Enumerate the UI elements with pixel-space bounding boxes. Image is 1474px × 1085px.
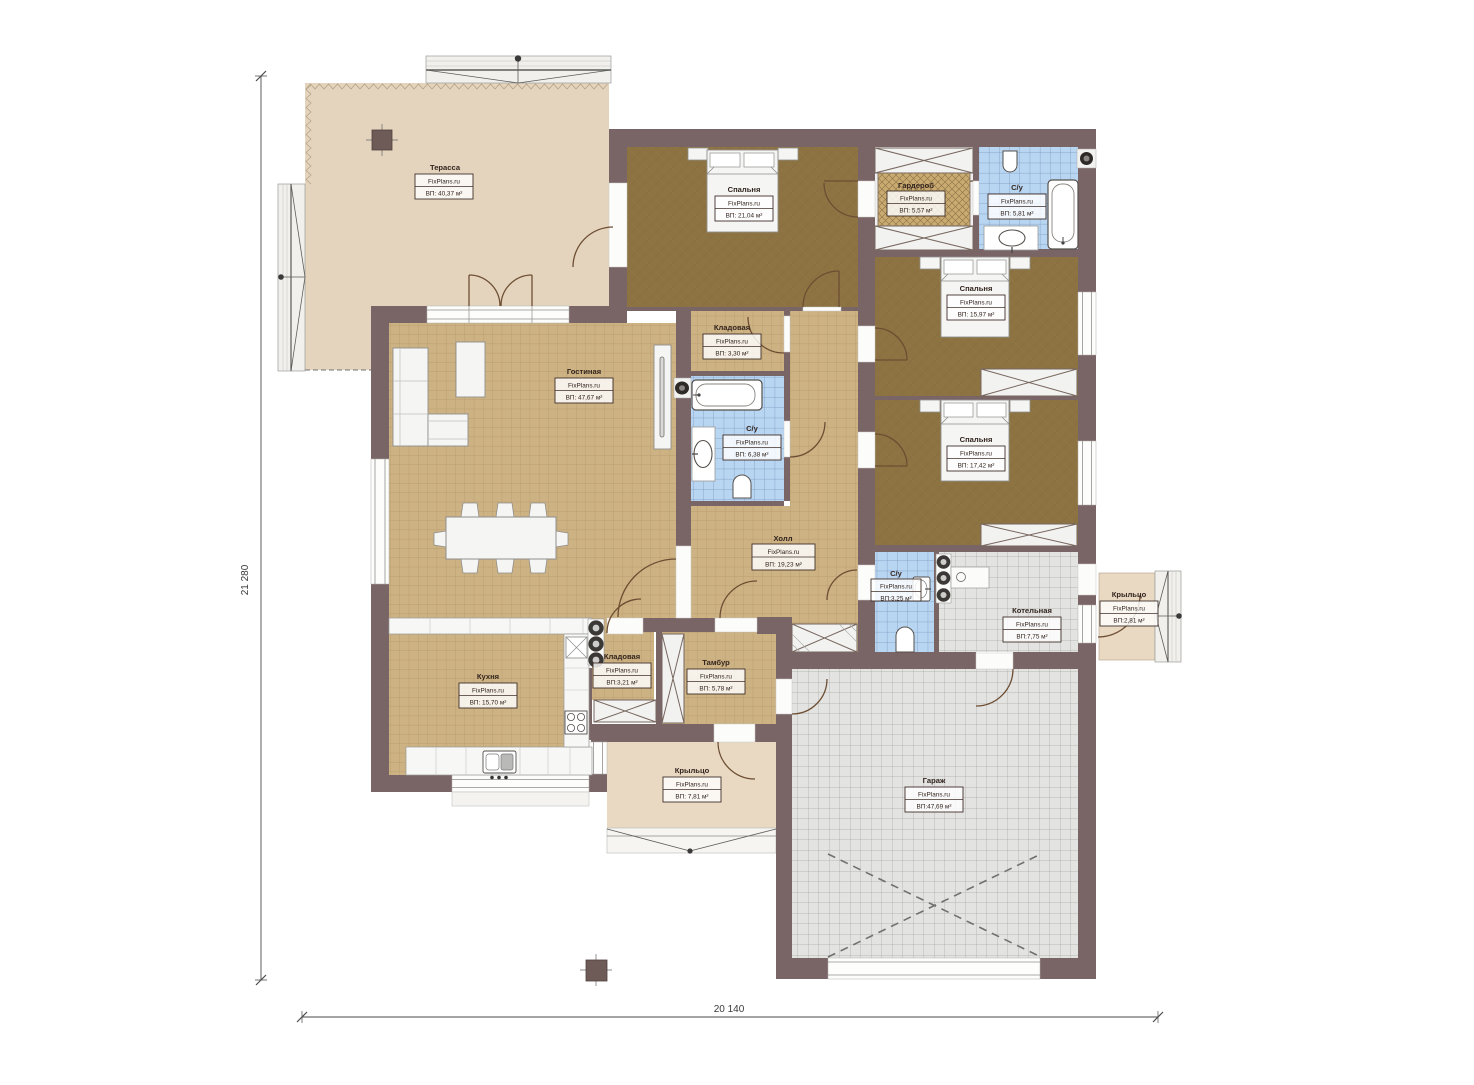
svg-text:FixPlans.ru: FixPlans.ru — [716, 339, 748, 346]
svg-text:ВП: 17,42 м²: ВП: 17,42 м² — [958, 463, 995, 470]
svg-text:Кладовая: Кладовая — [604, 652, 640, 661]
svg-text:Крыльцо: Крыльцо — [675, 766, 710, 775]
svg-text:FixPlans.ru: FixPlans.ru — [768, 549, 800, 556]
svg-text:Гараж: Гараж — [923, 776, 946, 785]
svg-text:FixPlans.ru: FixPlans.ru — [900, 196, 932, 203]
svg-text:FixPlans.ru: FixPlans.ru — [568, 383, 600, 390]
svg-text:ВП: 6,38 м²: ВП: 6,38 м² — [735, 452, 768, 459]
svg-text:ВП:47,69 м²: ВП:47,69 м² — [917, 804, 952, 811]
svg-text:FixPlans.ru: FixPlans.ru — [960, 300, 992, 307]
svg-text:FixPlans.ru: FixPlans.ru — [1001, 199, 1033, 206]
svg-text:ВП: 19,23 м²: ВП: 19,23 м² — [765, 562, 802, 569]
svg-text:ВП: 15,70 м²: ВП: 15,70 м² — [470, 700, 507, 707]
svg-text:ВП: 21,04 м²: ВП: 21,04 м² — [726, 213, 763, 220]
svg-text:FixPlans.ru: FixPlans.ru — [606, 668, 638, 675]
svg-text:Спальня: Спальня — [728, 185, 761, 194]
svg-text:FixPlans.ru: FixPlans.ru — [1113, 606, 1145, 613]
svg-text:ВП: 5,57 м²: ВП: 5,57 м² — [899, 208, 932, 215]
svg-text:21 280: 21 280 — [240, 564, 251, 595]
svg-text:ВП: 3,30 м²: ВП: 3,30 м² — [715, 351, 748, 358]
svg-text:ВП: 47,67 м²: ВП: 47,67 м² — [566, 395, 603, 402]
svg-text:Спальня: Спальня — [960, 435, 993, 444]
svg-text:Кладовая: Кладовая — [714, 323, 750, 332]
svg-text:ВП: 7,81 м²: ВП: 7,81 м² — [675, 794, 708, 801]
svg-text:ВП:3,21 м²: ВП:3,21 м² — [606, 680, 637, 687]
svg-text:Тамбур: Тамбур — [702, 658, 730, 667]
svg-text:Холл: Холл — [773, 534, 792, 543]
svg-text:ВП:7,75 м²: ВП:7,75 м² — [1016, 634, 1047, 641]
svg-text:Спальня: Спальня — [960, 284, 993, 293]
svg-text:FixPlans.ru: FixPlans.ru — [960, 451, 992, 458]
svg-text:Котельная: Котельная — [1012, 606, 1052, 615]
svg-text:FixPlans.ru: FixPlans.ru — [428, 179, 460, 186]
svg-text:Гардероб: Гардероб — [898, 181, 934, 190]
svg-text:FixPlans.ru: FixPlans.ru — [700, 674, 732, 681]
svg-text:ВП:2,81 м²: ВП:2,81 м² — [1113, 618, 1144, 625]
svg-text:FixPlans.ru: FixPlans.ru — [472, 688, 504, 695]
svg-text:Гостиная: Гостиная — [567, 367, 601, 376]
svg-text:FixPlans.ru: FixPlans.ru — [676, 782, 708, 789]
svg-text:Кухня: Кухня — [477, 672, 499, 681]
svg-text:20 140: 20 140 — [714, 1004, 745, 1015]
svg-text:FixPlans.ru: FixPlans.ru — [728, 201, 760, 208]
svg-text:ВП: 5,78 м²: ВП: 5,78 м² — [699, 686, 732, 693]
svg-text:С/у: С/у — [746, 424, 759, 433]
svg-text:ВП: 15,97 м²: ВП: 15,97 м² — [958, 312, 995, 319]
svg-text:С/у: С/у — [1011, 183, 1024, 192]
svg-text:ВП:3,25 м²: ВП:3,25 м² — [880, 596, 911, 603]
svg-text:FixPlans.ru: FixPlans.ru — [1016, 622, 1048, 629]
svg-text:FixPlans.ru: FixPlans.ru — [880, 584, 912, 591]
svg-text:С/у: С/у — [890, 569, 903, 578]
svg-text:Терасса: Терасса — [430, 163, 461, 172]
svg-text:FixPlans.ru: FixPlans.ru — [736, 440, 768, 447]
svg-text:ВП: 5,81 м²: ВП: 5,81 м² — [1000, 211, 1033, 218]
svg-text:ВП: 40,37 м²: ВП: 40,37 м² — [426, 191, 463, 198]
svg-text:FixPlans.ru: FixPlans.ru — [918, 792, 950, 799]
svg-text:Крыльцо: Крыльцо — [1112, 590, 1147, 599]
